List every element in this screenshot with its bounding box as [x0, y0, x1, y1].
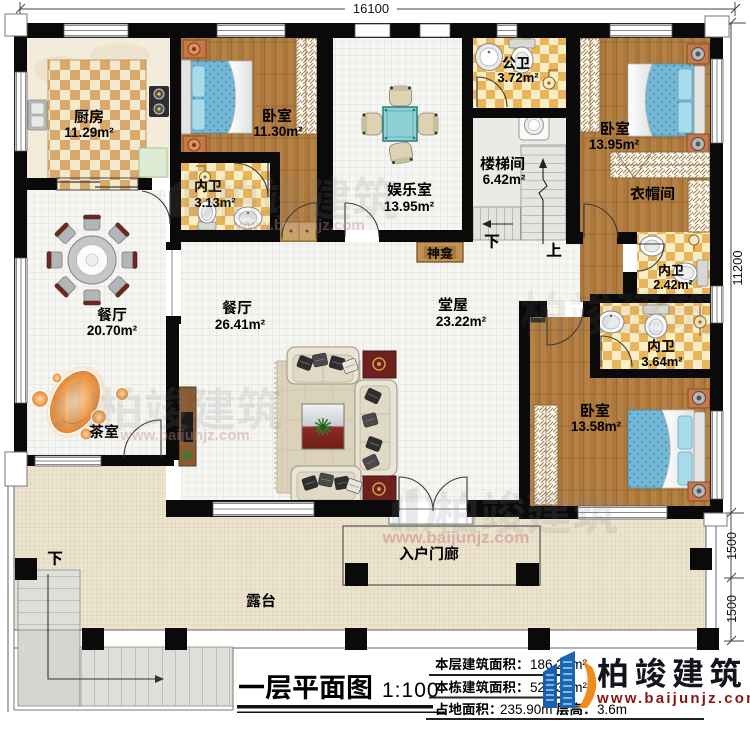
- svg-text:11.29m²: 11.29m²: [64, 125, 114, 140]
- svg-text:www.baijunjz.com: www.baijunjz.com: [382, 528, 530, 547]
- svg-text:1:100: 1:100: [382, 679, 440, 702]
- svg-text:2.42m²: 2.42m²: [653, 278, 693, 292]
- svg-text:1500: 1500: [725, 595, 739, 623]
- svg-text:1500: 1500: [725, 532, 739, 560]
- svg-text:www.baijunjz.com: www.baijunjz.com: [234, 217, 364, 234]
- svg-text:26.41m²: 26.41m²: [215, 317, 266, 332]
- svg-text:525.35m²: 525.35m²: [530, 680, 588, 695]
- svg-text:www.baijunjz.com: www.baijunjz.com: [596, 690, 750, 707]
- svg-text:20.70m²: 20.70m²: [87, 323, 138, 338]
- svg-text:16100: 16100: [353, 1, 389, 16]
- svg-text:www.baijunjz.com: www.baijunjz.com: [119, 427, 249, 444]
- svg-text:23.22m²: 23.22m²: [436, 314, 487, 329]
- svg-text:3.72m²: 3.72m²: [497, 70, 539, 85]
- svg-text:13.95m²: 13.95m²: [589, 137, 640, 152]
- svg-text:13.58m²: 13.58m²: [571, 419, 622, 434]
- svg-text:186.25m²: 186.25m²: [530, 657, 588, 672]
- svg-text:6.42m²: 6.42m²: [483, 172, 526, 187]
- svg-text:13.95m²: 13.95m²: [384, 199, 435, 214]
- svg-text:11.30m²: 11.30m²: [253, 124, 303, 139]
- svg-text:3.64m²: 3.64m²: [641, 354, 683, 369]
- svg-text:11200: 11200: [730, 250, 745, 285]
